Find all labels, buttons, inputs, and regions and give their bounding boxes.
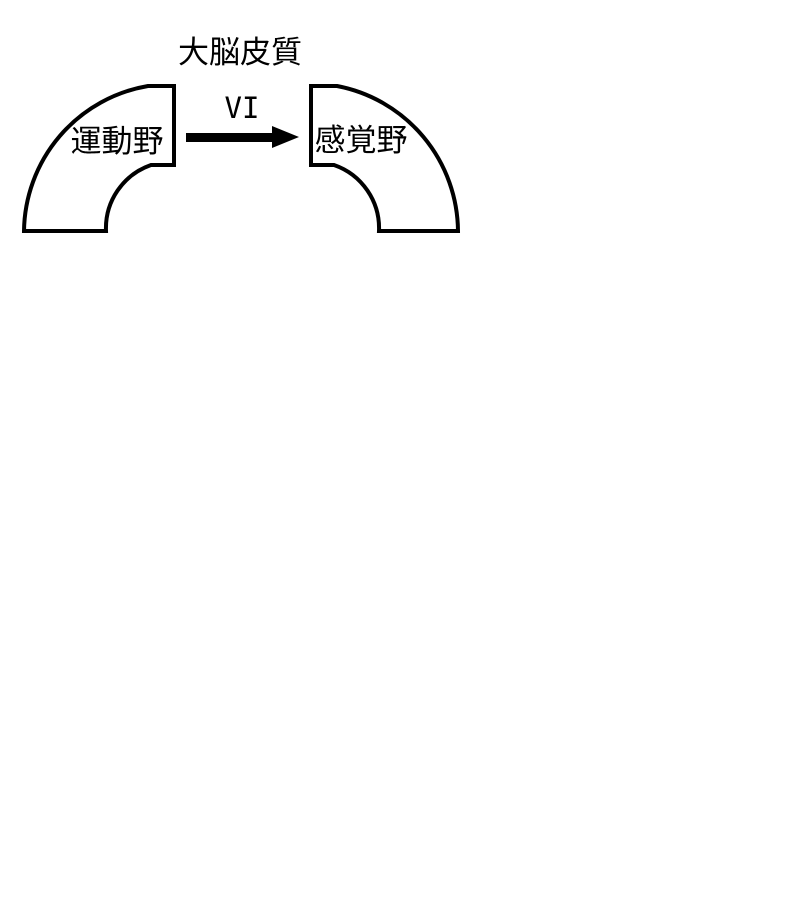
pathway-roman-numeral-label: VI (225, 91, 260, 125)
sensory-area-shape (311, 86, 458, 231)
sensory-area-label: 感覚野 (315, 123, 408, 158)
arrow-motor-to-sensory (186, 126, 299, 148)
motor-area-label: 運動野 (71, 124, 164, 159)
diagram-canvas: 大脳皮質 VI 運動野 感覚野 (0, 0, 806, 912)
diagram-title: 大脳皮質 (178, 35, 302, 70)
cerebral-cortex-pathway-diagram: 大脳皮質 VI 運動野 感覚野 (0, 0, 806, 912)
